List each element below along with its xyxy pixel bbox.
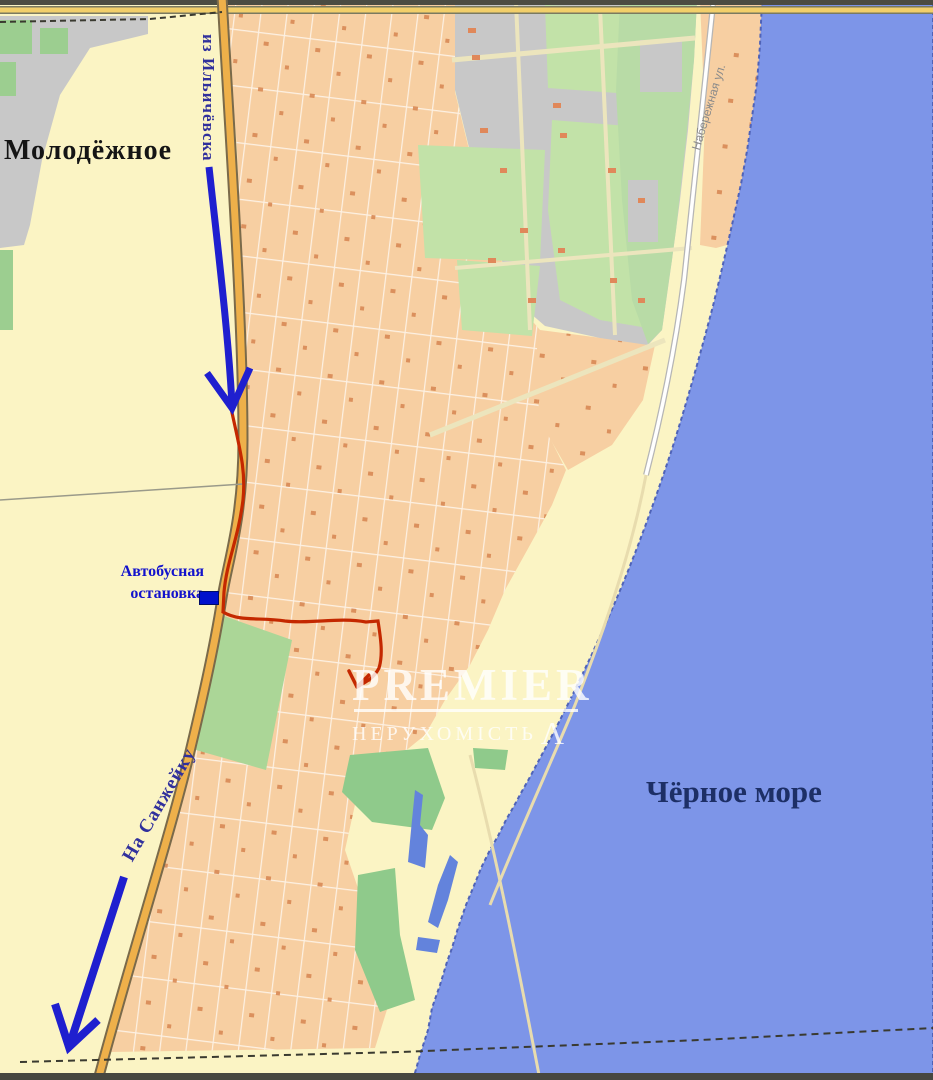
settlement-label: Молодёжное	[4, 135, 172, 167]
green-patch	[0, 20, 32, 54]
bottom-border	[0, 1073, 933, 1080]
watermark-subtitle: НЕРУХОМІСТЬ	[352, 723, 537, 746]
green-patch	[0, 62, 16, 96]
gray-patch	[628, 180, 658, 242]
bus-stop-label-line1: Автобусная	[76, 561, 204, 583]
watermark-brand: PREMIER	[352, 662, 593, 708]
bus-stop-marker	[199, 591, 219, 605]
watermark: PREMIER НЕРУХОМІСТЬΛ	[352, 662, 593, 752]
green-patch	[0, 250, 13, 330]
gray-patch	[640, 40, 682, 92]
top-border	[0, 0, 933, 5]
bus-stop-label: Автобусная остановка	[76, 561, 204, 605]
sea-label: Чёрное море	[646, 774, 822, 810]
watermark-mark-icon: Λ	[541, 715, 564, 752]
map-root: Молодёжное из Ильичёвска На Санжейку Наб…	[0, 0, 933, 1080]
green-patch	[40, 28, 68, 54]
bus-stop-label-line2: остановка	[76, 583, 204, 605]
road-label-from-ilyichevsk: из Ильичёвска	[198, 34, 218, 162]
